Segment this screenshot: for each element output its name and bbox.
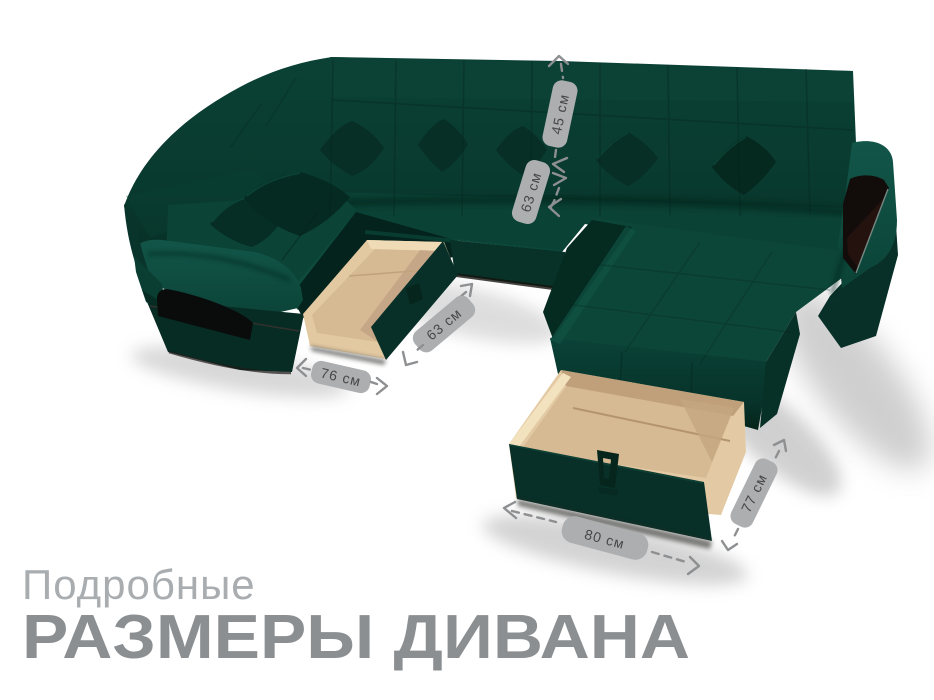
svg-text:РАЗМЕРЫ ДИВАНА: РАЗМЕРЫ ДИВАНА: [22, 601, 690, 671]
